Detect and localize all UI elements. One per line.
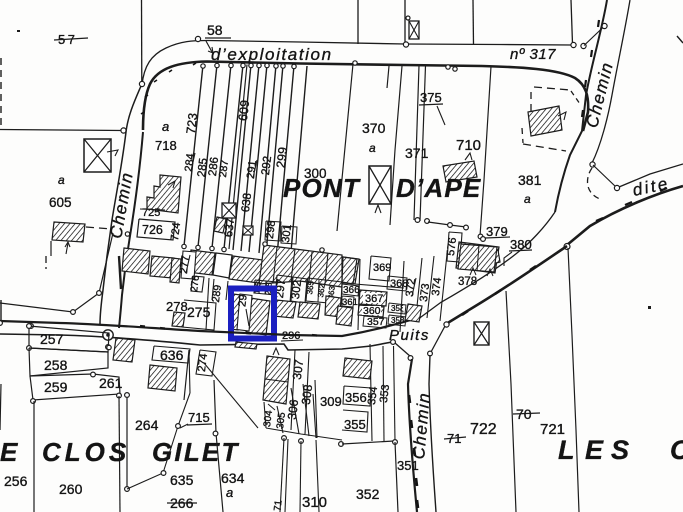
svg-text:71: 71 — [272, 499, 284, 512]
svg-text:351: 351 — [397, 458, 419, 473]
svg-text:d’exploitation: d’exploitation — [211, 45, 333, 64]
svg-text:723: 723 — [184, 112, 200, 134]
svg-text:372: 372 — [404, 278, 418, 298]
svg-text:a: a — [524, 192, 531, 206]
svg-text:369: 369 — [373, 262, 391, 274]
svg-text:nº 317: nº 317 — [510, 46, 556, 63]
svg-text:362: 362 — [316, 283, 327, 298]
svg-text:261: 261 — [99, 375, 123, 391]
svg-text:276: 276 — [189, 274, 202, 292]
svg-text:256: 256 — [4, 473, 28, 489]
svg-text:357: 357 — [367, 316, 385, 328]
svg-text:381: 381 — [518, 172, 542, 188]
svg-text:609: 609 — [236, 99, 252, 121]
svg-text:718: 718 — [155, 138, 177, 153]
svg-text:a: a — [369, 141, 376, 155]
svg-text:C: C — [670, 435, 683, 465]
svg-text:264: 264 — [135, 417, 159, 433]
svg-text:a: a — [58, 173, 65, 187]
svg-text:287: 287 — [217, 159, 231, 178]
svg-text:D’APE: D’APE — [396, 173, 481, 203]
svg-text:367: 367 — [365, 293, 383, 305]
svg-text:29: 29 — [236, 294, 249, 308]
svg-text:374: 374 — [430, 277, 444, 297]
svg-text:634: 634 — [221, 470, 245, 486]
svg-text:277: 277 — [178, 255, 192, 275]
svg-text:301: 301 — [280, 224, 294, 244]
svg-text:260: 260 — [59, 481, 83, 497]
svg-text:726: 726 — [142, 223, 163, 237]
svg-text:L: L — [558, 435, 575, 465]
svg-text:292: 292 — [260, 155, 274, 176]
svg-text:CLOS: CLOS — [42, 437, 130, 467]
svg-text:259: 259 — [44, 379, 68, 395]
svg-text:304: 304 — [262, 409, 275, 427]
svg-text:353: 353 — [378, 384, 392, 404]
svg-text:715: 715 — [188, 410, 210, 425]
svg-text:S: S — [611, 435, 629, 465]
svg-text:275: 275 — [187, 304, 211, 320]
svg-text:309: 309 — [320, 394, 342, 409]
svg-text:356: 356 — [345, 390, 367, 405]
svg-text:307: 307 — [290, 358, 306, 380]
svg-text:722: 722 — [470, 421, 497, 438]
svg-text:378: 378 — [458, 276, 477, 288]
svg-text:358: 358 — [391, 316, 405, 325]
svg-text:257: 257 — [40, 331, 64, 347]
svg-text:605: 605 — [49, 195, 72, 210]
svg-text:366: 366 — [343, 285, 360, 296]
svg-text:298: 298 — [264, 220, 278, 240]
svg-text:291: 291 — [245, 160, 259, 180]
svg-text:E: E — [0, 437, 18, 467]
svg-text:E: E — [585, 435, 604, 465]
svg-text:576: 576 — [445, 237, 459, 257]
svg-text:370: 370 — [362, 120, 386, 136]
svg-text:GILET: GILET — [152, 437, 240, 467]
svg-text:636: 636 — [160, 347, 184, 363]
svg-text:284: 284 — [183, 153, 197, 173]
svg-text:365: 365 — [305, 280, 316, 295]
svg-text:355: 355 — [344, 417, 366, 432]
svg-text:299: 299 — [274, 146, 290, 168]
svg-text:58: 58 — [207, 22, 223, 38]
svg-text:a: a — [226, 485, 233, 500]
svg-text:35ξ: 35ξ — [391, 304, 404, 313]
svg-text:635: 635 — [170, 472, 194, 488]
svg-text:361: 361 — [342, 297, 358, 308]
svg-text:375: 375 — [420, 90, 442, 105]
svg-text:a: a — [162, 119, 169, 134]
svg-text:710: 710 — [456, 137, 481, 154]
svg-text:638: 638 — [240, 192, 254, 213]
svg-text:302: 302 — [290, 279, 304, 300]
svg-text:310: 310 — [302, 494, 327, 511]
svg-text:258: 258 — [44, 357, 68, 373]
svg-text:274: 274 — [196, 353, 210, 373]
svg-text:352: 352 — [356, 486, 380, 502]
svg-text:PONT: PONT — [283, 173, 361, 203]
svg-text:724: 724 — [169, 222, 183, 242]
svg-text:371: 371 — [405, 145, 429, 161]
